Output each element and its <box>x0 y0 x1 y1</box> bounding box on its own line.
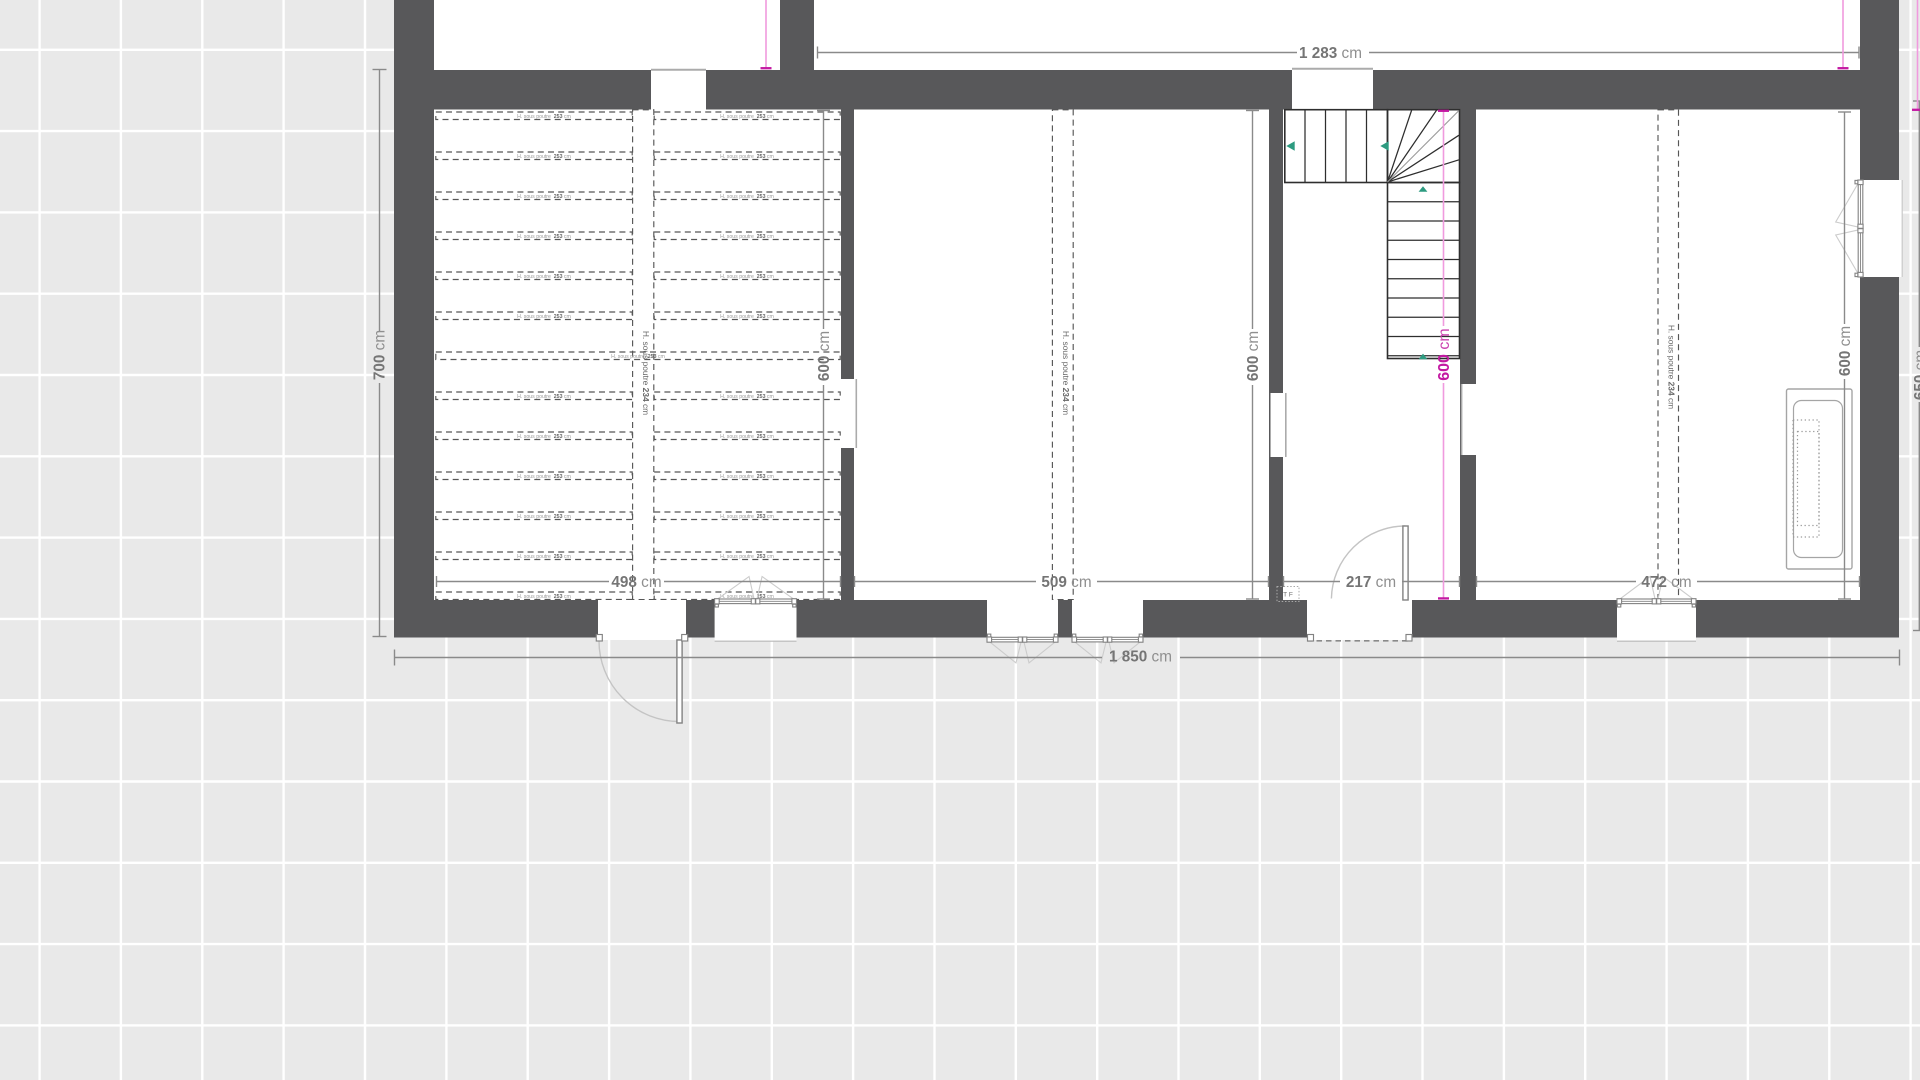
svg-text:H. sous poutre 234 cm: H. sous poutre 234 cm <box>641 331 651 415</box>
svg-text:H. sous poutre 253 cm: H. sous poutre 253 cm <box>720 274 774 280</box>
svg-text:H. sous poutre 253 cm: H. sous poutre 253 cm <box>517 554 571 560</box>
svg-text:H. sous poutre 253 cm: H. sous poutre 253 cm <box>517 274 571 280</box>
svg-text:600 cm: 600 cm <box>816 331 833 381</box>
svg-text:700 cm: 700 cm <box>372 330 389 380</box>
svg-text:H. sous poutre 234 cm: H. sous poutre 234 cm <box>1666 325 1676 409</box>
svg-text:H. sous poutre 253 cm: H. sous poutre 253 cm <box>720 474 774 480</box>
svg-text:498 cm: 498 cm <box>611 574 661 591</box>
svg-text:H. sous poutre 253 cm: H. sous poutre 253 cm <box>517 594 571 600</box>
svg-text:600 cm: 600 cm <box>1245 331 1262 381</box>
svg-text:H. sous poutre 253 cm: H. sous poutre 253 cm <box>517 314 571 320</box>
svg-text:H. sous poutre 253 cm: H. sous poutre 253 cm <box>517 114 571 120</box>
svg-text:1 283 cm: 1 283 cm <box>1299 45 1362 62</box>
svg-text:H. sous poutre 253 cm: H. sous poutre 253 cm <box>720 114 774 120</box>
svg-text:600 cm: 600 cm <box>1837 326 1854 376</box>
svg-text:H. sous poutre 253 cm: H. sous poutre 253 cm <box>517 154 571 160</box>
svg-text:H. sous poutre 253 cm: H. sous poutre 253 cm <box>720 394 774 400</box>
svg-text:217 cm: 217 cm <box>1346 574 1396 591</box>
svg-text:509 cm: 509 cm <box>1041 574 1091 591</box>
svg-text:H. sous poutre 253 cm: H. sous poutre 253 cm <box>720 314 774 320</box>
svg-text:H. sous poutre 253 cm: H. sous poutre 253 cm <box>517 514 571 520</box>
svg-text:T F: T F <box>1283 592 1293 599</box>
svg-text:H. sous poutre 253 cm: H. sous poutre 253 cm <box>517 394 571 400</box>
svg-text:H. sous poutre 234 cm: H. sous poutre 234 cm <box>1061 331 1071 415</box>
svg-text:H. sous poutre 253 cm: H. sous poutre 253 cm <box>720 234 774 240</box>
svg-text:H. sous poutre 253 cm: H. sous poutre 253 cm <box>611 354 665 360</box>
svg-text:H. sous poutre 253 cm: H. sous poutre 253 cm <box>720 154 774 160</box>
svg-text:H. sous poutre 253 cm: H. sous poutre 253 cm <box>517 434 571 440</box>
svg-text:H. sous poutre 253 cm: H. sous poutre 253 cm <box>720 194 774 200</box>
svg-text:650 cm: 650 cm <box>1912 350 1920 400</box>
svg-text:H. sous poutre 253 cm: H. sous poutre 253 cm <box>720 514 774 520</box>
svg-text:H. sous poutre 253 cm: H. sous poutre 253 cm <box>517 194 571 200</box>
svg-text:1 850 cm: 1 850 cm <box>1109 649 1172 666</box>
svg-text:H. sous poutre 253 cm: H. sous poutre 253 cm <box>517 234 571 240</box>
svg-text:600 cm: 600 cm <box>1436 328 1453 380</box>
svg-text:H. sous poutre 253 cm: H. sous poutre 253 cm <box>720 554 774 560</box>
svg-text:H. sous poutre 253 cm: H. sous poutre 253 cm <box>517 474 571 480</box>
svg-text:H. sous poutre 253 cm: H. sous poutre 253 cm <box>720 434 774 440</box>
svg-text:472 cm: 472 cm <box>1641 574 1691 591</box>
